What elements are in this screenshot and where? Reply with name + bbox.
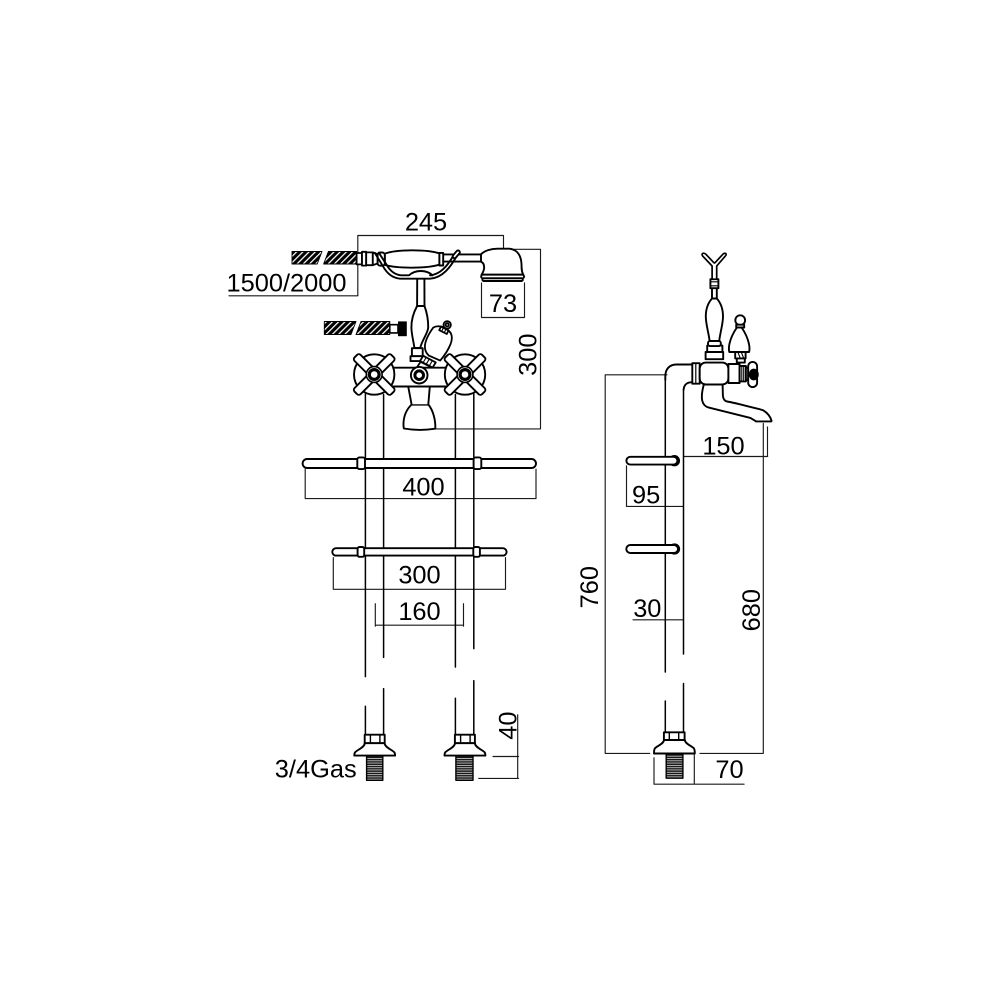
svg-text:245: 245: [405, 209, 447, 237]
svg-text:300: 300: [398, 561, 440, 589]
svg-text:1500/2000: 1500/2000: [227, 269, 347, 297]
svg-text:160: 160: [398, 598, 440, 626]
svg-text:680: 680: [738, 589, 766, 631]
svg-text:95: 95: [632, 482, 660, 510]
svg-text:30: 30: [633, 595, 661, 623]
svg-text:70: 70: [715, 756, 743, 784]
svg-text:40: 40: [495, 711, 523, 739]
svg-text:300: 300: [515, 334, 543, 376]
svg-text:400: 400: [402, 474, 444, 502]
svg-text:760: 760: [576, 566, 604, 608]
svg-text:3/4Gas: 3/4Gas: [275, 756, 357, 784]
svg-text:73: 73: [489, 290, 517, 318]
svg-text:150: 150: [702, 432, 744, 460]
